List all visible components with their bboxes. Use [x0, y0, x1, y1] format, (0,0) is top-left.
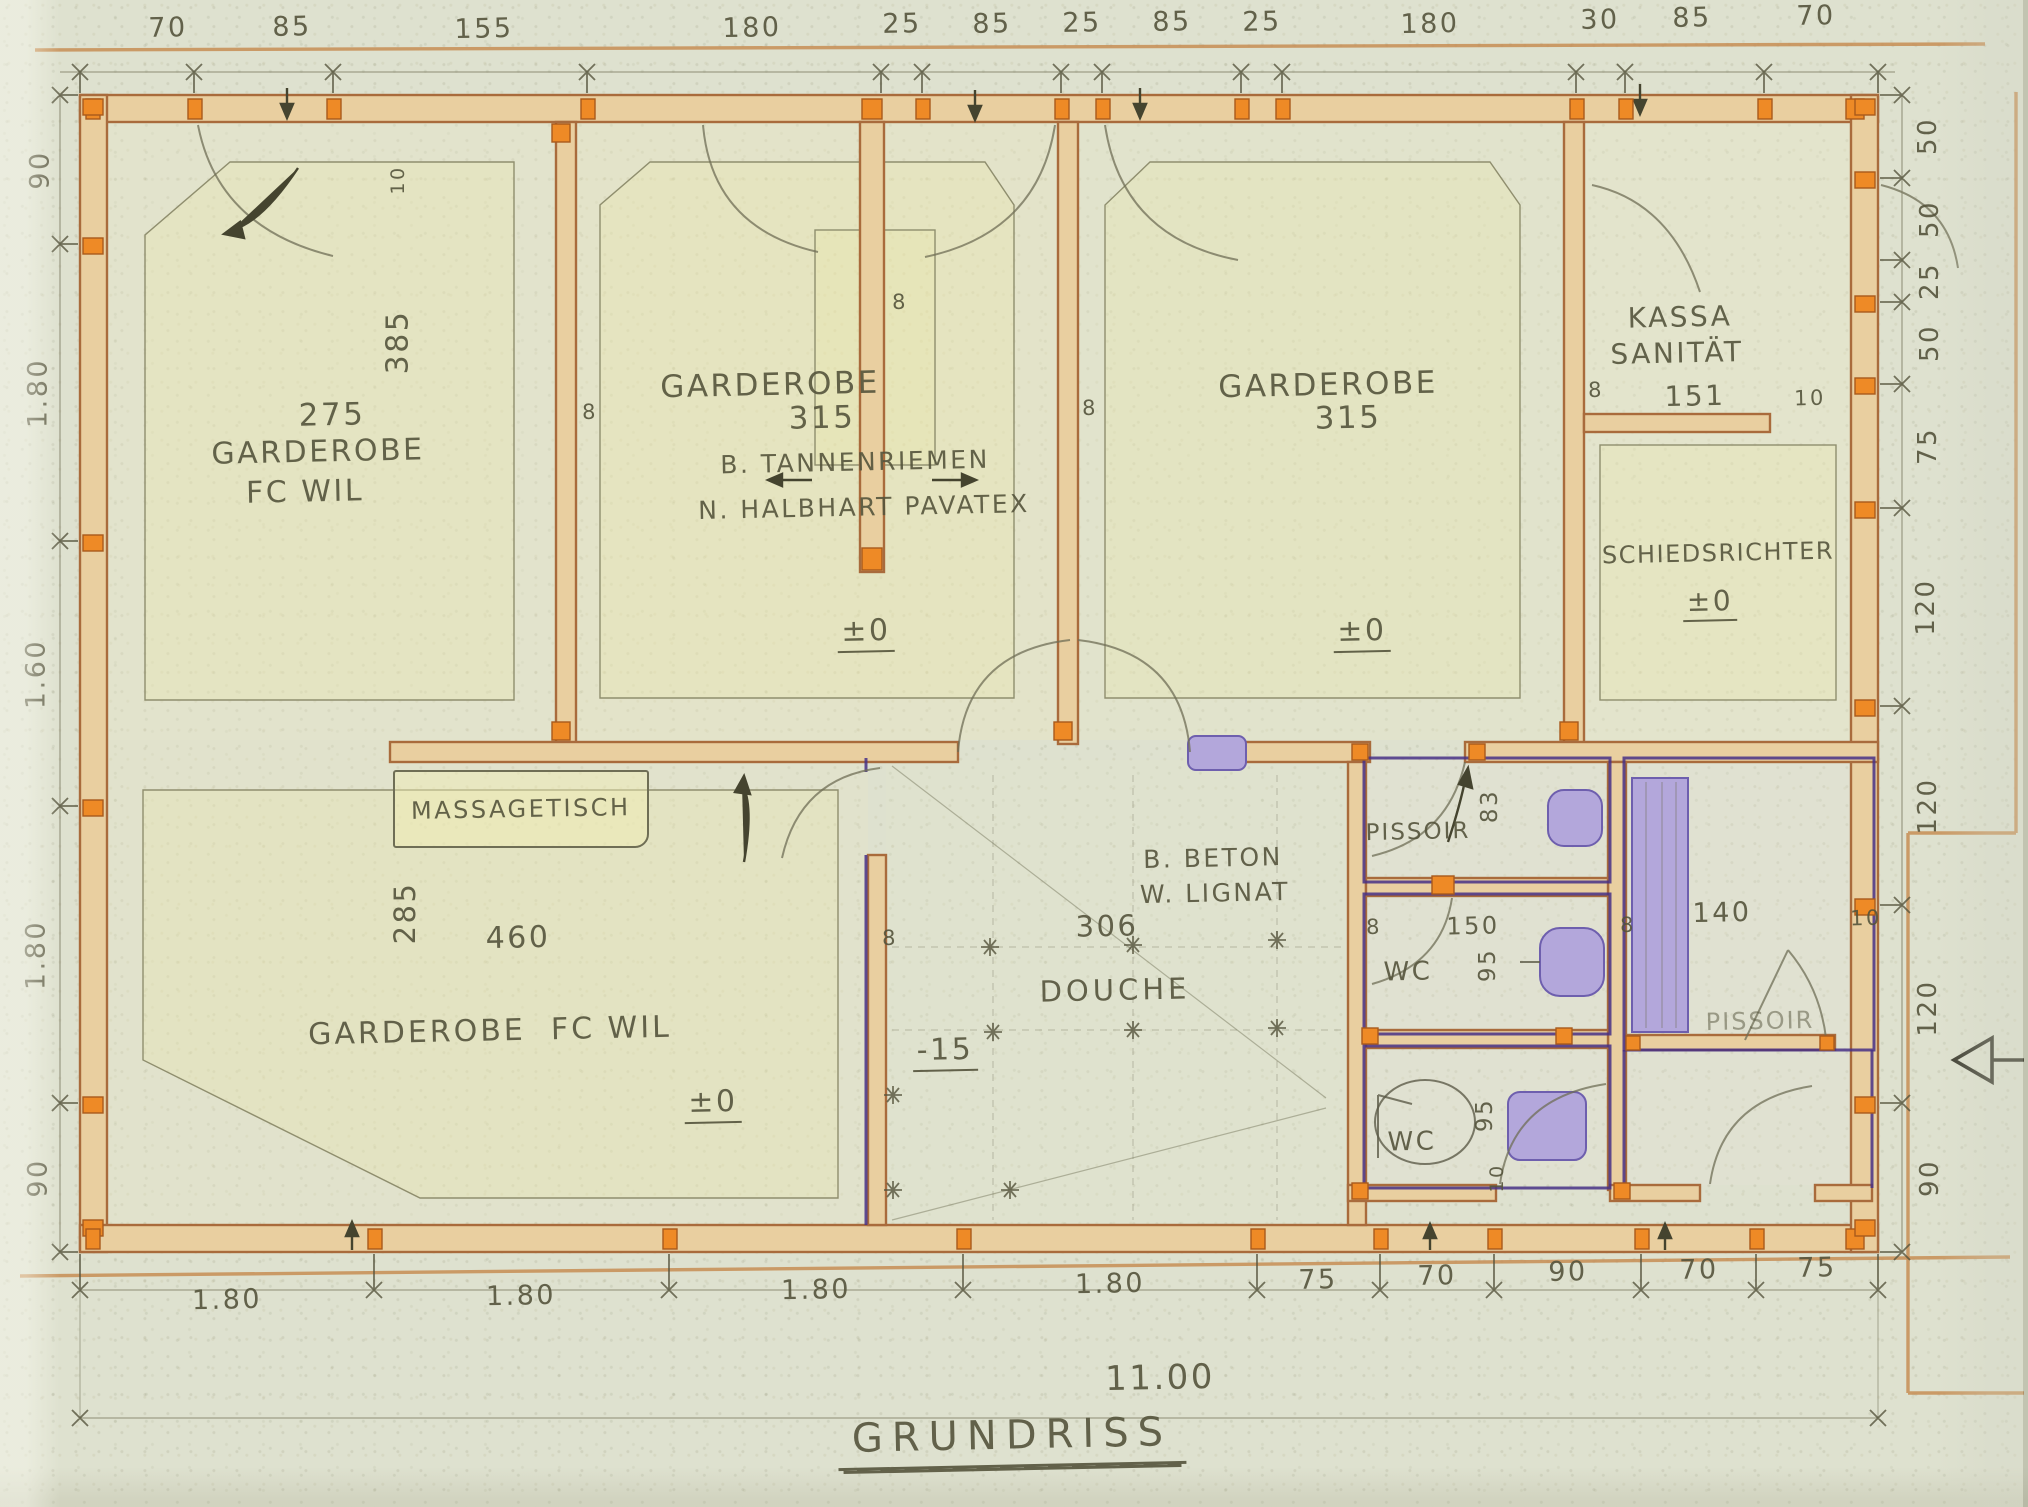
dim-right-3: 25: [1915, 262, 1945, 300]
dim-left-4: 1.80: [21, 920, 52, 990]
wall-mark-10-ul: 10: [387, 165, 409, 194]
dim-bottom-8: 70: [1679, 1254, 1719, 1286]
wc-top-depth: 95: [1475, 948, 1501, 982]
room-mid-number: 315: [788, 399, 855, 436]
floor-plan-sheet: 70 85 155 180 25 85 25 85 25 180 30 85 7…: [0, 0, 2028, 1507]
room-kassa-number: 151: [1664, 379, 1726, 413]
room-kassa-line1: KASSA: [1627, 299, 1732, 334]
dim-bottom-5: 75: [1298, 1264, 1338, 1296]
dim-top-2: 85: [272, 11, 312, 43]
wc-bottom-name: WC: [1387, 1126, 1436, 1157]
douche-material-w: W. LIGNAT: [1140, 877, 1291, 909]
room-right-name: GARDEROBE: [1218, 365, 1438, 406]
dim-top-10: 180: [1400, 8, 1460, 40]
dim-top-13: 70: [1796, 0, 1836, 32]
dim-right-7: 120: [1913, 777, 1943, 834]
dim-top-3: 155: [454, 13, 514, 45]
wall-mark-10-kassa: 10: [1794, 386, 1826, 411]
dim-top-6: 85: [972, 8, 1012, 40]
dim-bottom-3: 1.80: [781, 1274, 852, 1306]
toilet-lower-cistern: [1508, 1092, 1586, 1160]
room-ul-depth: 385: [381, 310, 416, 375]
dim-top-8: 85: [1152, 6, 1192, 38]
pissoir-small-name: PISSOIR: [1365, 818, 1470, 846]
douche-level: -15: [912, 1032, 977, 1072]
room-schiedsrichter-name: SCHIEDSRICHTER: [1602, 537, 1835, 570]
pissoir-large-name: PISSOIR: [1705, 1006, 1814, 1036]
dim-right-9: 90: [1915, 1159, 1945, 1197]
overall-dimension: 11.00: [1105, 1357, 1216, 1399]
wc-bottom-door: 10: [1486, 1163, 1508, 1192]
dim-left-1: 90: [25, 150, 56, 189]
dim-top-7: 25: [1062, 7, 1102, 39]
dim-bottom-2: 1.80: [486, 1280, 557, 1312]
room-mid-level: ±0: [837, 613, 895, 653]
room-kassa-line2: SANITÄT: [1610, 335, 1744, 371]
dim-bottom-1: 1.80: [192, 1284, 263, 1316]
massage-table: MASSAGETISCH: [393, 770, 649, 848]
dim-right-4: 50: [1915, 324, 1945, 362]
room-ul-name: GARDEROBE: [211, 432, 425, 471]
wall-mark-8-wc-right: 8: [1620, 913, 1636, 937]
room-ul-number: 275: [298, 396, 365, 433]
wall-mark-8-wallC: 8: [1588, 378, 1604, 402]
pissoir-large-gap: 10: [1850, 906, 1882, 931]
pissoir-small-depth: 83: [1477, 789, 1503, 823]
drawing-title: GRUNDRISS: [837, 1409, 1186, 1471]
wall-mark-8-wc-left: 8: [1366, 915, 1382, 939]
dim-right-1: 50: [1913, 117, 1943, 155]
dim-right-5: 75: [1913, 427, 1943, 465]
toilet-upper: [1540, 928, 1604, 996]
wc-top-width: 150: [1446, 911, 1500, 940]
dim-bottom-9: 75: [1797, 1252, 1837, 1284]
room-right-level: ±0: [1333, 613, 1391, 653]
room-ll-level: ±0: [684, 1084, 742, 1124]
douche-material-b: B. BETON: [1143, 842, 1283, 874]
dim-top-5: 25: [882, 8, 922, 40]
dim-right-8: 120: [1913, 979, 1943, 1036]
room-ll-depth: 285: [388, 882, 422, 945]
wc-top-name: WC: [1383, 956, 1432, 987]
pissoir-large-width: 140: [1692, 897, 1752, 929]
room-mid-material-b: B. TANNENRIEMEN: [720, 445, 990, 480]
douche-name: DOUCHE: [1039, 971, 1190, 1008]
dim-bottom-4: 1.80: [1075, 1268, 1146, 1300]
pissoir-trough: [1632, 778, 1688, 1032]
dim-left-5: 90: [23, 1158, 54, 1197]
wall-mark-8-wallA: 8: [582, 400, 598, 424]
room-ll-width: 460: [485, 920, 550, 956]
dim-left-3: 1.60: [21, 639, 52, 709]
wash-basin: [1548, 790, 1602, 846]
wc-bottom-depth: 95: [1472, 1098, 1498, 1132]
dim-top-11: 30: [1580, 4, 1620, 36]
massage-table-label: MASSAGETISCH: [411, 793, 631, 825]
dim-top-1: 70: [148, 12, 188, 44]
room-schiedsrichter-level: ±0: [1682, 584, 1737, 622]
dim-bottom-6: 70: [1417, 1260, 1457, 1292]
wall-mark-8-douche: 8: [882, 926, 898, 950]
dim-right-2: 50: [1915, 200, 1945, 238]
entrance-arrow: [1954, 1038, 2024, 1082]
dim-right-6: 120: [1911, 578, 1941, 635]
small-basin: [1188, 736, 1246, 770]
room-right-number: 315: [1314, 399, 1381, 436]
dim-left-2: 1.80: [23, 358, 54, 428]
dim-top-12: 85: [1672, 2, 1712, 34]
dim-top-4: 180: [722, 12, 782, 44]
dim-top-9: 25: [1242, 6, 1282, 38]
wall-mark-8-wallB: 8: [1082, 396, 1098, 420]
dim-bottom-7: 90: [1548, 1256, 1588, 1288]
room-ul-team: FC WIL: [246, 473, 365, 510]
wall-mark-8-spine: 8: [892, 290, 908, 314]
floor-plan-drawing: [0, 0, 2028, 1507]
douche-width: 306: [1075, 908, 1139, 943]
